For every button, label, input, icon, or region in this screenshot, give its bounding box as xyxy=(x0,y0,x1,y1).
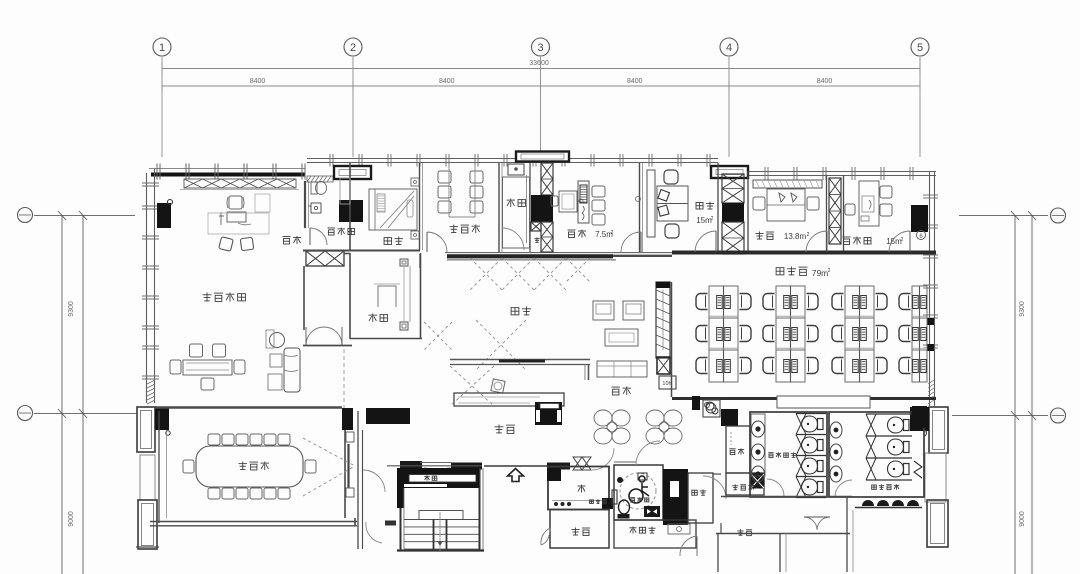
svg-text:3: 3 xyxy=(537,42,543,54)
svg-text:9300: 9300 xyxy=(1019,301,1026,317)
svg-text:4: 4 xyxy=(726,42,732,54)
svg-text:79m: 79m xyxy=(812,268,829,278)
svg-text:2: 2 xyxy=(901,237,904,243)
svg-text:2: 2 xyxy=(807,232,810,238)
svg-text:13.8m: 13.8m xyxy=(784,232,807,241)
svg-text:33600: 33600 xyxy=(529,60,549,67)
svg-text:2: 2 xyxy=(350,42,356,54)
svg-text:5: 5 xyxy=(917,42,923,54)
svg-text:8400: 8400 xyxy=(817,78,833,85)
svg-text:1: 1 xyxy=(159,42,165,54)
svg-text:9300: 9300 xyxy=(68,301,75,317)
svg-text:10h: 10h xyxy=(662,381,671,387)
svg-text:9000: 9000 xyxy=(1019,511,1026,527)
svg-text:2: 2 xyxy=(711,216,714,222)
svg-text:8400: 8400 xyxy=(439,78,455,85)
svg-text:2: 2 xyxy=(611,230,614,236)
svg-text:9000: 9000 xyxy=(68,511,75,527)
svg-text:8400: 8400 xyxy=(627,78,643,85)
svg-text:8400: 8400 xyxy=(250,78,266,85)
svg-text:2: 2 xyxy=(828,268,831,274)
